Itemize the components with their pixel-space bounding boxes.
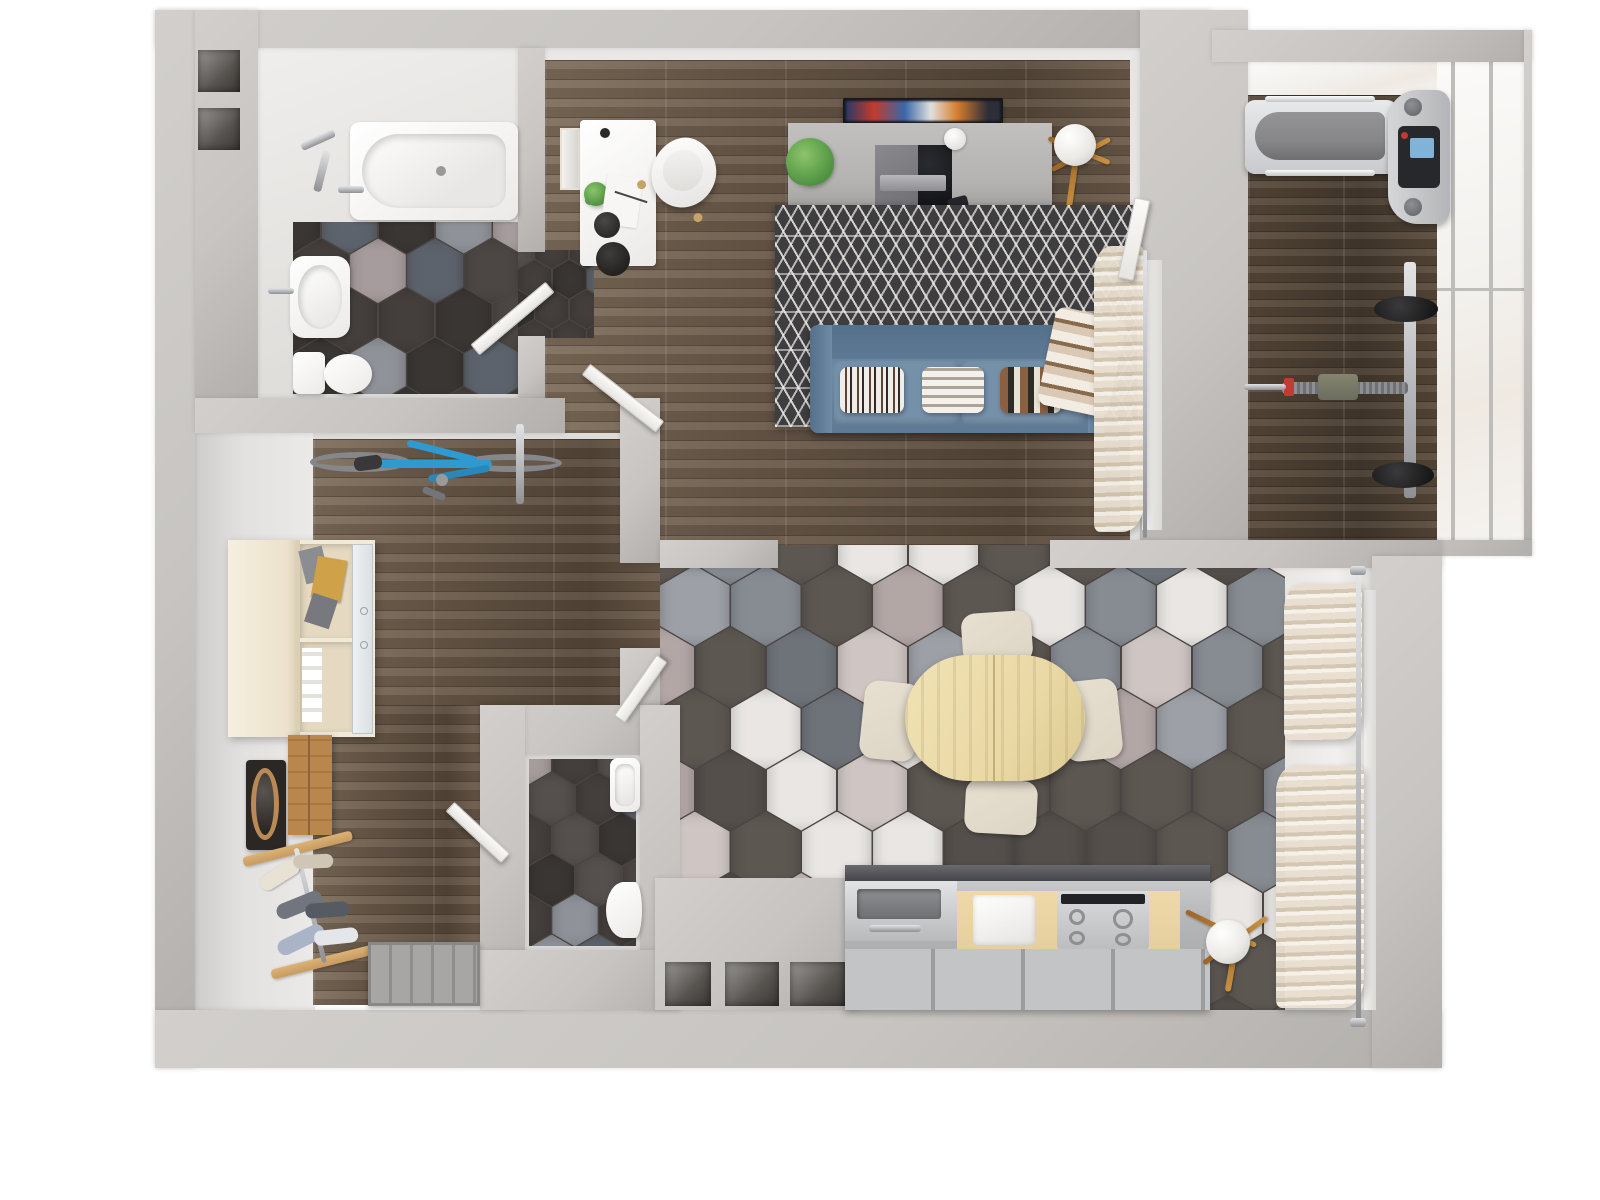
bar-holder (1244, 384, 1286, 390)
bathroom-washbasin (290, 256, 350, 338)
wall-dining-right (1372, 556, 1442, 1068)
glass-door-handle (360, 607, 368, 615)
wall-bottom (155, 1010, 1442, 1068)
glass-frame-mullion (1489, 62, 1493, 540)
treadmill-belt (1255, 112, 1385, 160)
wall-gym-top (1212, 30, 1532, 62)
appliance-front (973, 895, 1035, 945)
wall-niche-top-1 (198, 50, 240, 92)
console-stop-button (1401, 132, 1408, 139)
dining-chair-bottom (964, 778, 1039, 836)
shoe-white (313, 927, 358, 947)
wall-niche-top-2 (198, 108, 240, 150)
hex-tile (553, 260, 586, 299)
wall-mirror (246, 760, 286, 850)
desk-picture-frame (560, 128, 580, 190)
bathtub (350, 122, 518, 220)
bathtub-drain (436, 166, 446, 176)
treadmill-rail (1265, 170, 1375, 176)
wc-basin-bowl (615, 764, 635, 806)
table-leaf-seam (993, 655, 995, 781)
treadmill-rail (1265, 96, 1375, 102)
tub-faucet (338, 186, 364, 193)
webcam-ball (944, 128, 966, 150)
sink-module (845, 881, 957, 941)
living-window-curtain (1094, 246, 1144, 532)
console-plant (786, 138, 834, 186)
curtain-rod-cap-top (1350, 566, 1366, 575)
tv-screen (846, 101, 1000, 121)
console-screen (1410, 138, 1434, 158)
wall-dining-stub (660, 540, 778, 568)
wall-gym-right-frame (1524, 30, 1532, 556)
wardrobe-door-panel (228, 540, 300, 737)
shoe-dark (305, 901, 350, 919)
wood-cabinet (288, 735, 332, 835)
lamp-globe (1054, 124, 1096, 166)
bike-crank (436, 474, 448, 486)
desk-twig-vase (600, 128, 610, 138)
wall-left (155, 10, 195, 1068)
hex-tile (552, 894, 597, 947)
bike-handlebar (516, 424, 524, 504)
wc-washbasin (610, 758, 640, 812)
dining-window-recess (1364, 590, 1376, 1010)
curtain-rod-cap-bottom (1350, 1018, 1366, 1027)
pillow-striped (840, 367, 904, 413)
floor-lamp-dining (1178, 886, 1288, 996)
wall-top (155, 10, 1212, 48)
sink-faucet (869, 925, 921, 932)
wc-toilet (606, 882, 642, 938)
entrance-door (368, 942, 480, 1006)
console-cup-holder (1404, 198, 1422, 216)
gas-cooktop (1057, 891, 1149, 949)
treadmill-console (1388, 90, 1450, 224)
hex-tile (525, 773, 528, 826)
weight-plate (1374, 296, 1438, 322)
floor-lamp-living (1040, 112, 1120, 192)
burner (1069, 909, 1085, 925)
tv (843, 98, 1003, 124)
lamp-globe (1206, 920, 1250, 964)
gym-top-glazing (1248, 62, 1437, 95)
hex-tile (525, 854, 528, 907)
dining-curtain-rod (1356, 574, 1361, 1020)
weight-rack (1240, 256, 1452, 506)
desk-tray (596, 242, 630, 276)
wall-bathroom-living-lower (518, 336, 545, 398)
cooktop-control-strip (1061, 894, 1145, 904)
bathroom-toilet-bowl (324, 354, 372, 394)
shoe-cream (293, 854, 333, 869)
living-curtain-rod (1143, 250, 1147, 538)
soundbar (880, 175, 946, 191)
bike-pedal (422, 486, 447, 501)
bicycle (310, 418, 565, 513)
pillow-checked (922, 367, 984, 413)
wardrobe-shelf-top (300, 544, 352, 638)
desk-lamp-shade (594, 212, 620, 238)
wardrobe (228, 540, 375, 737)
bathtub-basin (362, 134, 506, 208)
wall-bathroom-living-upper (518, 48, 545, 252)
glass-door-handle (360, 641, 368, 649)
dining-curtain-lower (1276, 766, 1364, 1008)
dining-curtain-upper (1284, 584, 1362, 740)
burner (1115, 933, 1131, 946)
sofa-arm-left (810, 325, 832, 433)
countertop-dark-edge (845, 865, 1210, 881)
bathroom-toilet-tank (293, 352, 325, 394)
floor-plan-stage (0, 0, 1600, 1200)
towel-stack (302, 648, 322, 722)
burner (1113, 909, 1133, 929)
oval-dining-table (905, 655, 1085, 781)
treadmill (1245, 100, 1397, 174)
weight-plate (1372, 462, 1434, 488)
sink-basin (857, 889, 941, 919)
mirror-oval (251, 768, 279, 840)
basin-faucet (268, 288, 294, 294)
kitchen-wall-niche-3 (790, 962, 846, 1006)
cabinet-beige-front (957, 891, 1180, 949)
hex-tile (525, 935, 528, 951)
hex-tile (529, 773, 574, 826)
wall-wc-bottom (480, 950, 680, 1010)
hex-tile (529, 854, 574, 907)
wardrobe-glass-door (352, 544, 373, 734)
kitchen-wall-niche-1 (665, 962, 711, 1006)
kitchen-counter (845, 865, 1210, 1010)
hex-tile (552, 813, 597, 866)
stored-bag-gray (304, 593, 338, 630)
barbell-grip-pad (1318, 374, 1358, 400)
console-cup-holder (1404, 98, 1422, 116)
wardrobe-shelf-bottom (300, 642, 352, 732)
lower-drawer-front (845, 949, 1210, 1010)
washbasin-bowl (298, 265, 342, 329)
burner (1069, 931, 1085, 945)
kitchen-wall-niche-2 (725, 962, 779, 1006)
cabinet-door-gap (308, 735, 310, 835)
